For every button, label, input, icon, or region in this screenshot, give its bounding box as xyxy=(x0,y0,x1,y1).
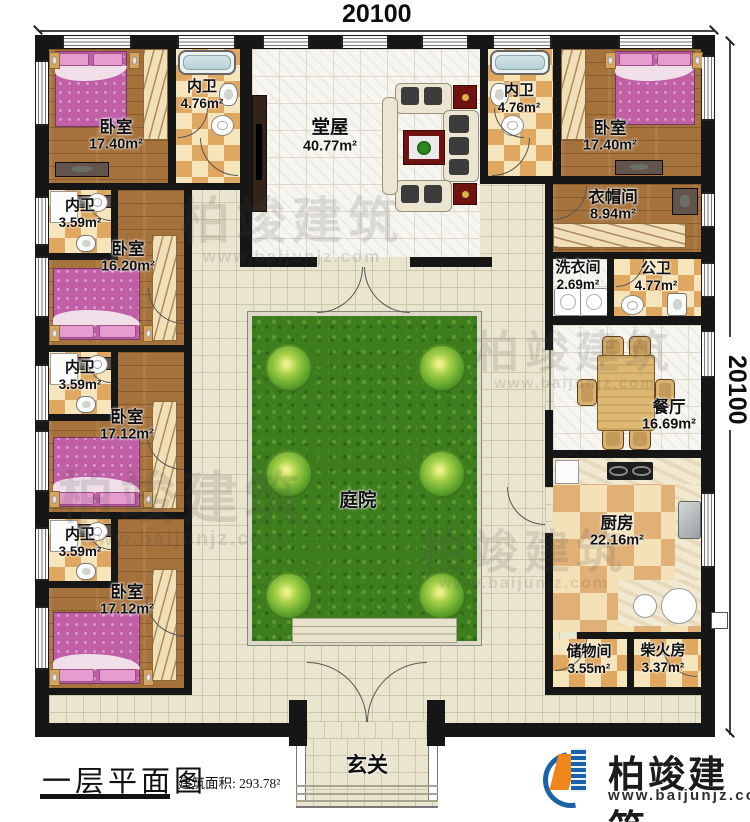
toilet xyxy=(76,396,96,413)
opening-line xyxy=(549,350,551,410)
dresser xyxy=(55,162,109,177)
door-arc xyxy=(364,267,410,313)
kitchen-sink xyxy=(678,501,701,539)
brand-url: www.baijunjz.com xyxy=(608,787,750,804)
door-post xyxy=(427,700,445,746)
brand-logo-icon xyxy=(541,742,601,804)
sink xyxy=(621,295,644,315)
courtyard xyxy=(248,312,481,645)
nightstand xyxy=(49,52,60,69)
chair xyxy=(577,379,597,406)
washing-machine xyxy=(580,288,608,316)
window xyxy=(36,60,48,126)
sofa-cushion xyxy=(401,185,419,203)
utility-box xyxy=(711,612,728,629)
room-label-cloakroom: 衣帽间8.94m² xyxy=(588,189,638,224)
side-table xyxy=(453,183,477,205)
door-arc xyxy=(507,487,545,525)
room-label-bath: 内卫3.59m² xyxy=(59,527,102,559)
kitchen-appliance xyxy=(555,460,579,484)
tv xyxy=(256,124,262,180)
toilet xyxy=(76,235,96,252)
wall xyxy=(49,512,184,519)
window xyxy=(341,36,389,48)
wall xyxy=(545,184,553,695)
window xyxy=(421,36,469,48)
door-arc xyxy=(317,267,363,313)
sink xyxy=(211,115,234,136)
toilet xyxy=(76,563,96,580)
window xyxy=(36,527,48,581)
sofa-cushion xyxy=(424,185,442,203)
wall xyxy=(545,450,701,458)
courtyard-steps xyxy=(292,618,457,643)
wall xyxy=(553,687,701,695)
window xyxy=(618,36,694,48)
room-label-bedroom: 卧室17.12m² xyxy=(100,409,154,444)
sofa-cushion xyxy=(401,87,419,105)
dimension-line-right xyxy=(729,42,731,337)
window xyxy=(36,196,48,246)
dimension-line-right xyxy=(729,430,731,735)
bathtub xyxy=(490,50,550,75)
window xyxy=(177,36,236,48)
wall xyxy=(553,252,701,259)
room-label-bath: 内卫3.59m² xyxy=(59,198,102,230)
entrance-opening xyxy=(307,721,427,738)
wall xyxy=(545,316,701,325)
foyer-step-line xyxy=(296,785,438,787)
coffee-table xyxy=(403,130,445,165)
wall xyxy=(553,49,561,176)
bed xyxy=(53,437,140,507)
window xyxy=(702,492,714,568)
floor-plan-page: 20100 20100 xyxy=(0,0,750,822)
nightstand xyxy=(129,52,140,69)
sofa-cushion xyxy=(424,87,442,105)
room-label-bedroom: 卧室16.20m² xyxy=(101,241,155,276)
bed xyxy=(53,268,140,340)
washing-machine xyxy=(554,288,582,316)
room-label-foyer: 玄关 xyxy=(346,754,388,778)
room-label-public-bath: 公卫4.77m² xyxy=(635,261,678,293)
stove xyxy=(607,462,653,480)
dimension-line-top xyxy=(38,30,714,32)
tree-icon xyxy=(265,344,313,392)
room-label-storage: 储物间3.55m² xyxy=(566,644,611,676)
dimension-right: 20100 xyxy=(722,355,750,425)
window xyxy=(702,55,714,121)
room-label-bedroom: 卧室17.40m² xyxy=(583,120,637,155)
bathtub xyxy=(178,50,236,75)
wall xyxy=(184,190,192,695)
window xyxy=(36,430,48,492)
room-label-bath: 内卫4.76m² xyxy=(498,83,541,115)
building-area-note: 建筑面积: 293.78² xyxy=(178,772,280,792)
sofa-cushion xyxy=(449,115,469,133)
toilet xyxy=(667,293,687,316)
room-label-bath: 内卫3.59m² xyxy=(59,360,102,392)
window xyxy=(702,262,714,298)
room-label-hall: 堂屋40.77m² xyxy=(303,118,357,155)
nightstand xyxy=(49,325,60,342)
tree-icon xyxy=(418,572,466,620)
wall xyxy=(577,632,701,639)
wall xyxy=(480,176,701,184)
wall xyxy=(607,259,614,316)
room-label-bath: 内卫4.76m² xyxy=(181,79,224,111)
nightstand xyxy=(49,669,60,686)
door-post xyxy=(289,700,307,746)
wall xyxy=(49,345,184,352)
window xyxy=(36,256,48,318)
window xyxy=(702,330,714,378)
bed xyxy=(55,51,127,127)
wall xyxy=(168,49,176,183)
tree-icon xyxy=(265,572,313,620)
foyer-step-line xyxy=(296,793,438,795)
window xyxy=(36,364,48,422)
wall xyxy=(627,639,634,687)
floor-plan: 卧室17.40m² 内卫4.76m² 堂屋40.77m² 内卫4.76m² 卧室… xyxy=(35,35,715,737)
room-label-bedroom: 卧室17.12m² xyxy=(100,584,154,619)
wall xyxy=(49,183,240,190)
room-label-kitchen: 厨房22.16m² xyxy=(590,515,644,550)
window xyxy=(36,606,48,670)
logo-building-blue xyxy=(571,748,586,792)
tree-icon xyxy=(418,344,466,392)
chair xyxy=(602,428,624,450)
dresser xyxy=(615,160,663,175)
wardrobe xyxy=(553,223,686,248)
sofa-cushion xyxy=(449,137,469,155)
room-label-laundry: 洗衣间2.69m² xyxy=(555,260,600,292)
side-table xyxy=(453,85,477,109)
nightstand xyxy=(605,52,616,69)
window xyxy=(702,192,714,228)
bed xyxy=(615,51,695,125)
room-label-bedroom: 卧室17.40m² xyxy=(89,119,143,154)
dimension-top: 20100 xyxy=(342,0,412,29)
basin xyxy=(661,588,697,624)
basin xyxy=(633,594,657,618)
wall xyxy=(240,257,317,267)
foyer-step-line xyxy=(296,800,438,802)
wall xyxy=(240,49,252,267)
wardrobe xyxy=(143,49,168,140)
window xyxy=(262,36,310,48)
room-label-courtyard: 庭院 xyxy=(339,491,376,512)
bed xyxy=(53,612,140,684)
title-underline xyxy=(40,794,170,799)
wall xyxy=(410,257,492,267)
tree-icon xyxy=(418,450,466,498)
tree-icon xyxy=(265,450,313,498)
sofa-chaise xyxy=(382,97,398,195)
dresser xyxy=(672,188,698,215)
wall xyxy=(49,688,192,695)
brand-name: 柏竣建筑 xyxy=(608,744,750,822)
window xyxy=(492,36,552,48)
wall xyxy=(480,49,488,176)
sofa-cushion xyxy=(449,159,469,175)
window xyxy=(62,36,132,48)
nightstand xyxy=(49,491,60,508)
room-label-dining: 餐厅16.69m² xyxy=(642,399,696,434)
room-label-firewood: 柴火房3.37m² xyxy=(640,643,685,675)
wall xyxy=(111,519,118,588)
opening xyxy=(545,487,553,533)
